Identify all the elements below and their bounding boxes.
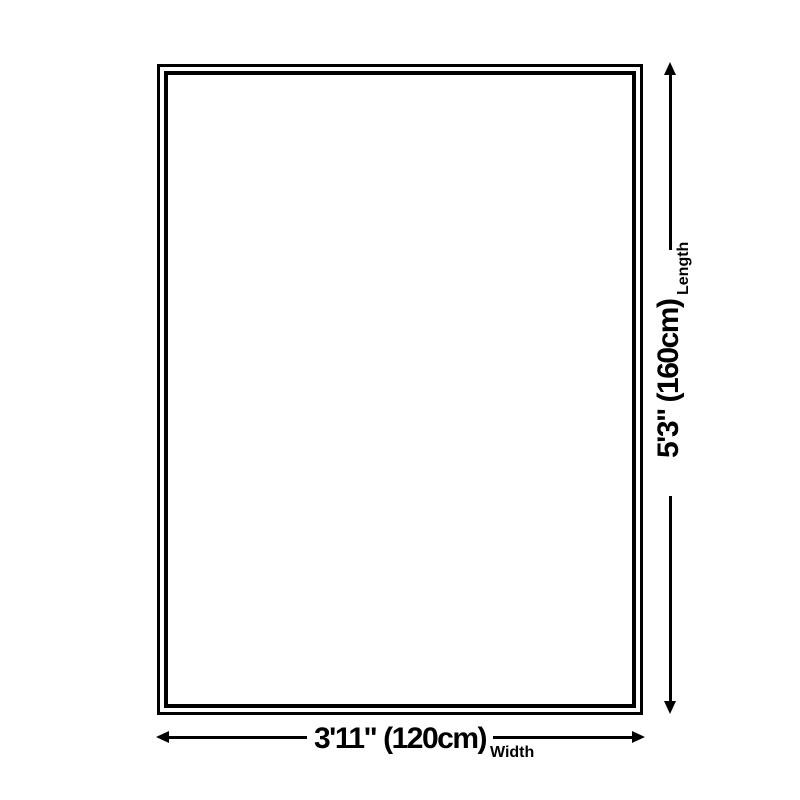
width-line-right bbox=[493, 736, 632, 739]
width-value-label: 3'11" (120cm) bbox=[307, 721, 493, 757]
length-line-upper bbox=[669, 74, 672, 250]
width-line-left bbox=[168, 736, 307, 739]
rug-inner-border bbox=[164, 71, 636, 708]
rug-outline bbox=[157, 64, 643, 715]
arrow-down-icon bbox=[664, 701, 676, 714]
width-axis-label: Width bbox=[490, 744, 534, 762]
arrow-right-icon bbox=[632, 731, 645, 743]
rug-dimension-diagram: Length 5'3" (160cm) 3'11" (120cm) Width bbox=[0, 0, 800, 800]
length-value-label: 5'3" (160cm) bbox=[651, 300, 687, 458]
length-line-lower bbox=[669, 496, 672, 702]
length-axis-label: Length bbox=[675, 242, 693, 295]
